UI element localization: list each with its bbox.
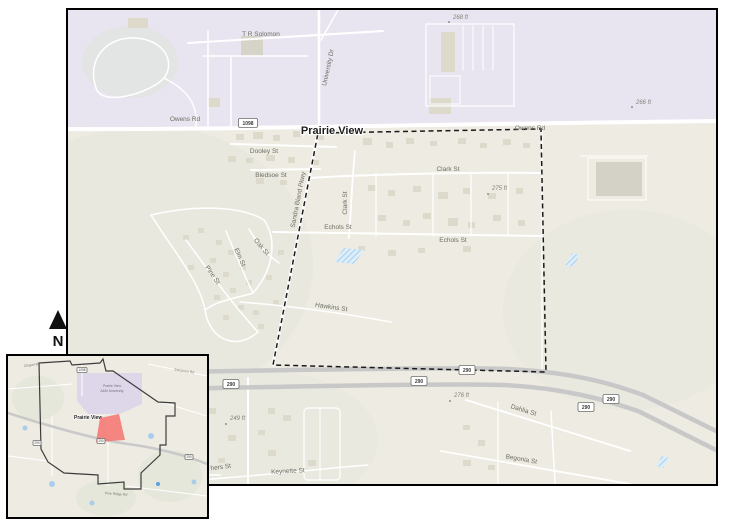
inset-campus-label: A&M University: [100, 389, 123, 393]
route-shield-290: 290: [411, 377, 427, 386]
street-label: Echols St: [324, 224, 352, 231]
route-shield-290: 290: [603, 395, 619, 404]
route-shield-label: 290: [582, 405, 591, 411]
route-shield-290: 290: [223, 380, 239, 389]
elevation-label: 268 ft: [452, 15, 468, 21]
elevation-label: 266 ft: [635, 100, 651, 106]
inset-campus-label: Prairie View: [103, 384, 122, 388]
route-shield-label: 290: [607, 397, 616, 403]
route-shield-label: 290: [34, 441, 40, 445]
street-label: Owens Rd: [170, 116, 201, 123]
inset-route-shield-290: 290: [97, 439, 105, 444]
inset-route-shield-1098: 1098: [77, 368, 87, 373]
street-label: Dooley St: [250, 148, 278, 155]
inset-locator-map: Prairie View A&M University Prairie View…: [6, 354, 209, 519]
elevation-label: 275 ft: [491, 186, 507, 192]
route-shield-290: 290: [459, 366, 475, 375]
inset-map-canvas: Prairie View A&M University Prairie View…: [8, 356, 207, 517]
route-shield-label: 290: [98, 439, 104, 443]
route-shield-label: 290: [463, 368, 472, 374]
inset-route-shield-290: 290: [33, 441, 41, 446]
route-shield-label: 290: [415, 379, 424, 385]
north-arrow-label: N: [53, 333, 64, 350]
inset-city-label: Prairie View: [74, 415, 102, 421]
route-shield-label: 290: [186, 455, 192, 459]
north-arrow: N: [44, 306, 72, 352]
route-shield-label: 1098: [78, 368, 85, 372]
inset-route-shield-290: 290: [185, 455, 193, 460]
route-shield-1098: 1098: [239, 119, 258, 128]
street-label: Bledsoe St: [255, 172, 287, 179]
north-arrow-icon: [49, 310, 67, 329]
route-shield-label: 290: [227, 382, 236, 388]
city-label-prairie-view: Prairie View: [301, 125, 364, 137]
route-shield-label: 1098: [242, 121, 253, 127]
elevation-label: 249 ft: [229, 416, 245, 422]
street-label: T R Solomon: [242, 31, 280, 38]
street-label: Clark St: [436, 166, 459, 173]
street-label: Owens Rd: [515, 125, 546, 132]
street-label: Clark St: [342, 191, 349, 214]
street-label: Echols St: [439, 237, 467, 244]
inset-university-campus-area: [77, 373, 142, 414]
elevation-label: 276 ft: [453, 393, 469, 399]
route-shield-290: 290: [578, 403, 594, 412]
